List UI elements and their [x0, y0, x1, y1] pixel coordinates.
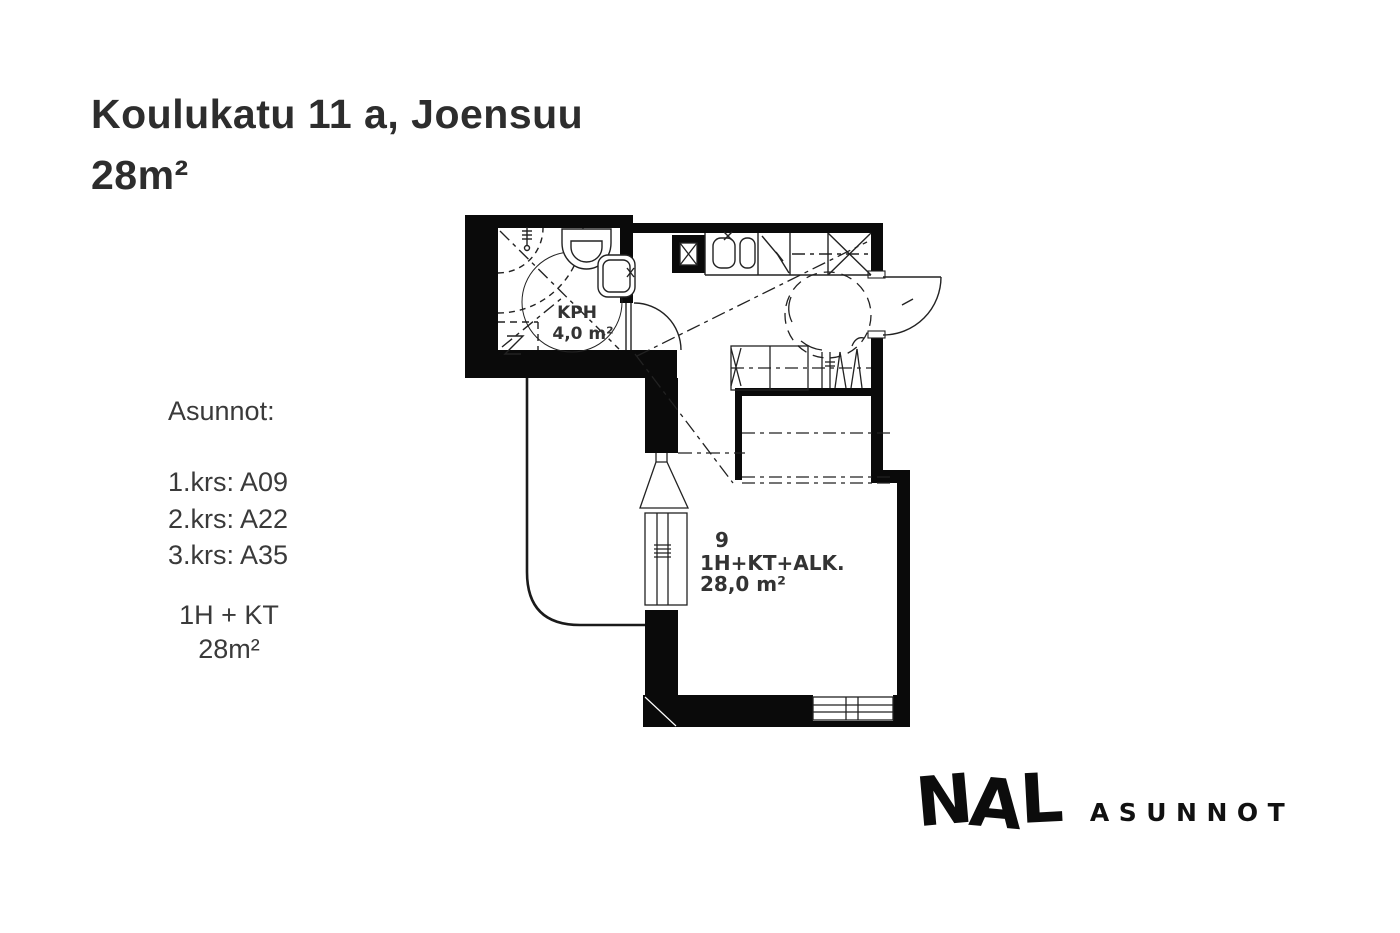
- bathroom-label: KPH: [557, 303, 597, 323]
- bathroom-door: [626, 303, 681, 350]
- room-area-label: 28,0 m²: [700, 572, 786, 596]
- wall-left-column-upper: [645, 378, 678, 453]
- floor-item-3: 3.krs: A35: [168, 537, 290, 574]
- duct-shaft: [680, 243, 697, 265]
- walls: [465, 215, 910, 727]
- title-address: Koulukatu 11 a, Joensuu: [91, 84, 583, 145]
- wall-right-jog: [871, 470, 910, 483]
- apartments-heading: Asunnot:: [168, 396, 290, 427]
- kitchen-sink-icon: [713, 232, 755, 268]
- entrance-door: [868, 271, 941, 338]
- window-bottom: [813, 694, 893, 721]
- dining-table: [785, 272, 871, 358]
- bathroom-door-swing-arc: [634, 303, 681, 350]
- floor-plan: KPH 4,0 m² 9 1H+KT+ALK. 28,0 m²: [455, 205, 955, 740]
- room-number-label: 9: [715, 528, 729, 552]
- wall-kitchen-top: [633, 223, 883, 233]
- logo-letter-n: N: [913, 766, 973, 838]
- logo-wordmark: N A L: [916, 768, 1060, 836]
- bathroom-area-label: 4,0 m²: [552, 324, 613, 344]
- apartment-size: 28m²: [168, 631, 290, 667]
- wall-right-lower: [897, 483, 910, 727]
- apartment-type: 1H + KT: [168, 600, 290, 631]
- floor-item-2: 2.krs: A22: [168, 501, 290, 538]
- kitchen: [705, 232, 871, 275]
- exterior-boundary-line: [527, 378, 645, 625]
- wall-right-below-door: [871, 338, 883, 470]
- wall-alcove-partition: [735, 388, 871, 396]
- wall-right-above-door: [871, 233, 883, 271]
- main-room: [731, 272, 895, 483]
- shower-icon: [522, 227, 532, 251]
- floor-item-1: 1.krs: A09: [168, 464, 290, 501]
- door-sill-bottom: [868, 331, 885, 338]
- window-left: [640, 453, 688, 605]
- appliance-reservation-mark: [762, 236, 789, 273]
- plan-labels: KPH 4,0 m² 9 1H+KT+ALK. 28,0 m²: [552, 303, 844, 596]
- logo-suffix: ASUNNOT: [1090, 798, 1294, 827]
- title-size: 28m²: [91, 145, 583, 206]
- wall-bathroom-bottom: [465, 350, 677, 378]
- apartment-info: Asunnot: 1.krs: A09 2.krs: A22 3.krs: A3…: [168, 396, 290, 667]
- wall-alcove-left: [735, 396, 742, 480]
- wardrobe-hangers-icon: [822, 338, 864, 388]
- page-title: Koulukatu 11 a, Joensuu 28m²: [91, 84, 583, 206]
- wall-left-column-lower: [645, 610, 678, 695]
- logo-letter-l: L: [1018, 765, 1062, 835]
- washbasin-icon: [598, 255, 635, 297]
- door-swing-arc: [883, 277, 941, 335]
- header: Koulukatu 11 a, Joensuu 28m²: [91, 84, 583, 206]
- nal-logo: N A L ASUNNOT: [916, 768, 1294, 836]
- chair-arc-1: [789, 297, 792, 322]
- logo-letter-a: A: [967, 769, 1022, 841]
- page: Koulukatu 11 a, Joensuu 28m² Asunnot: 1.…: [0, 0, 1400, 933]
- door-handle-tick: [902, 299, 913, 305]
- window-reveal-cone: [640, 462, 688, 508]
